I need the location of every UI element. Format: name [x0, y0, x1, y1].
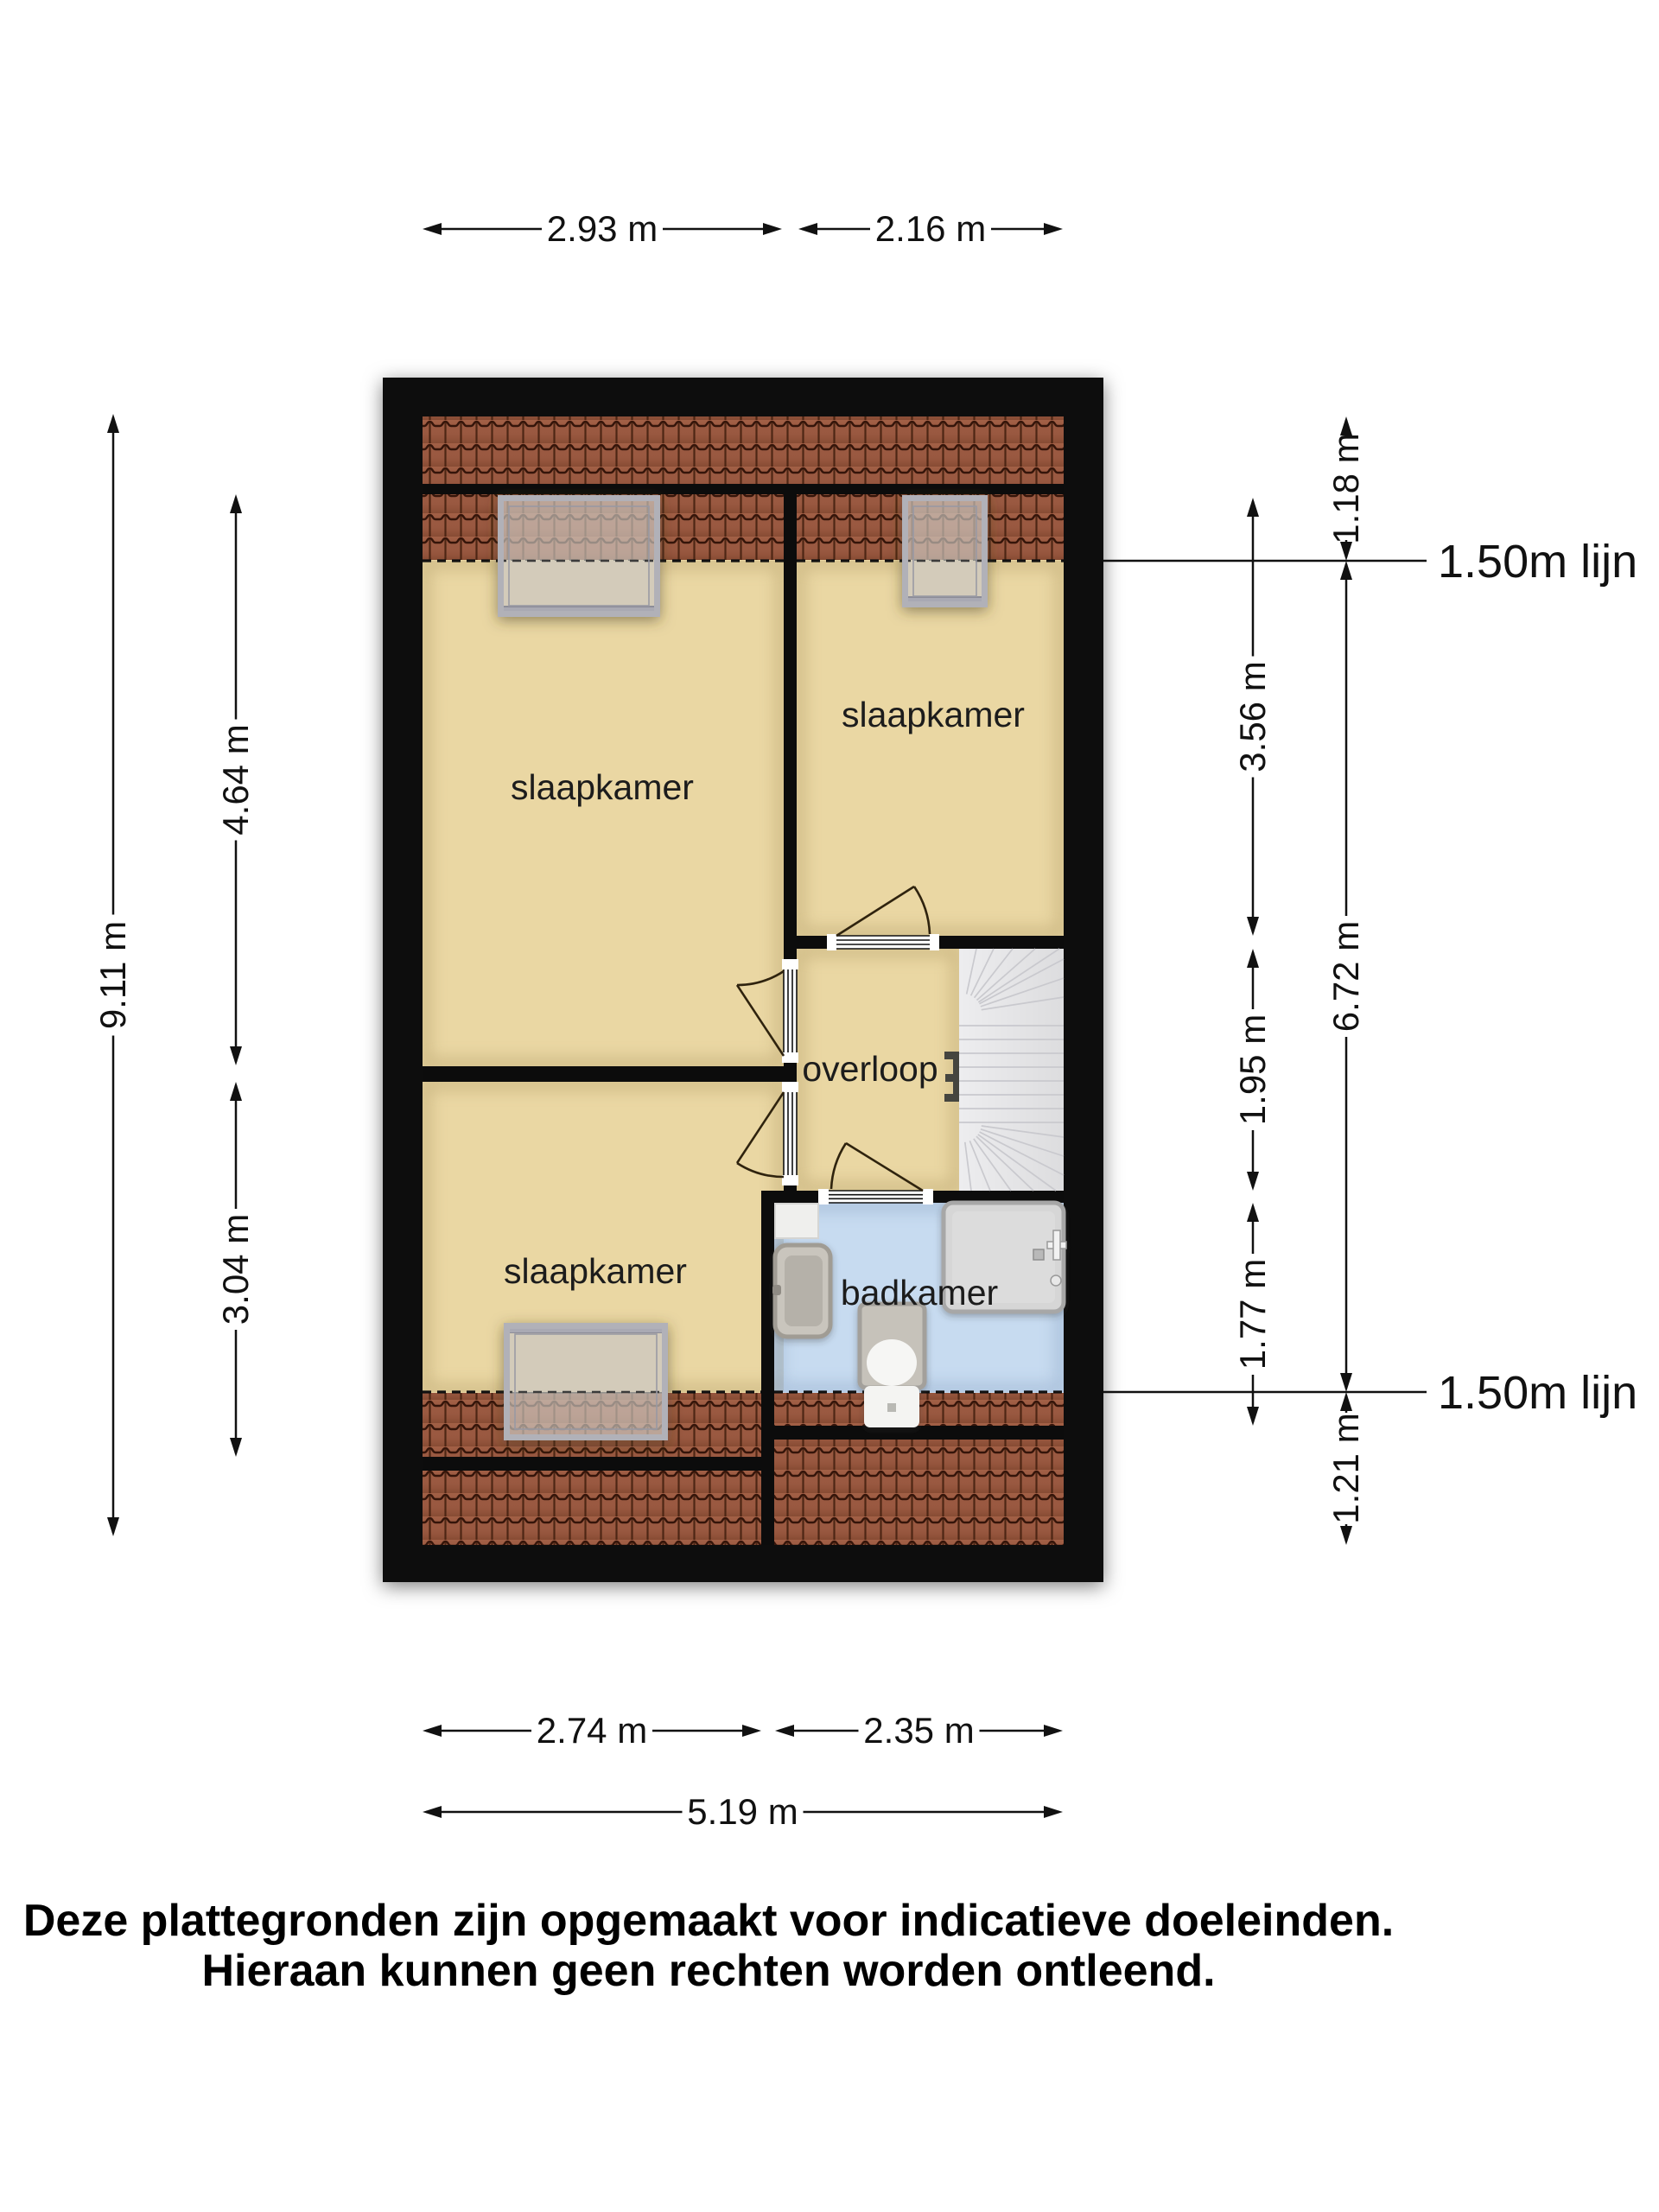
svg-text:1.18 m: 1.18 m — [1325, 433, 1366, 543]
svg-text:slaapkamer: slaapkamer — [842, 695, 1025, 734]
svg-text:2.35 m: 2.35 m — [863, 1710, 974, 1751]
svg-text:5.19 m: 5.19 m — [687, 1791, 798, 1832]
svg-text:slaapkamer: slaapkamer — [511, 767, 694, 807]
svg-text:9.11 m: 9.11 m — [92, 921, 133, 1029]
svg-text:badkamer: badkamer — [841, 1273, 998, 1313]
svg-text:3.04 m: 3.04 m — [215, 1214, 256, 1325]
svg-text:1.95 m: 1.95 m — [1232, 1014, 1273, 1125]
svg-text:1.77 m: 1.77 m — [1232, 1259, 1273, 1370]
svg-text:overloop: overloop — [802, 1049, 938, 1089]
svg-text:slaapkamer: slaapkamer — [504, 1251, 687, 1291]
svg-text:Hieraan kunnen geen rechten wo: Hieraan kunnen geen rechten worden ontle… — [201, 1946, 1215, 1996]
svg-text:2.93 m: 2.93 m — [547, 208, 658, 249]
svg-text:1.50m lijn: 1.50m lijn — [1438, 1367, 1637, 1419]
svg-text:3.56 m: 3.56 m — [1232, 661, 1273, 772]
svg-text:1.50m lijn: 1.50m lijn — [1438, 536, 1637, 588]
svg-text:2.16 m: 2.16 m — [875, 208, 986, 249]
svg-text:2.74 m: 2.74 m — [537, 1710, 647, 1751]
svg-text:Deze plattegronden zijn opgema: Deze plattegronden zijn opgemaakt voor i… — [23, 1896, 1394, 1946]
svg-text:4.64 m: 4.64 m — [215, 724, 256, 835]
svg-text:1.21 m: 1.21 m — [1325, 1413, 1366, 1523]
svg-text:6.72 m: 6.72 m — [1325, 921, 1366, 1032]
